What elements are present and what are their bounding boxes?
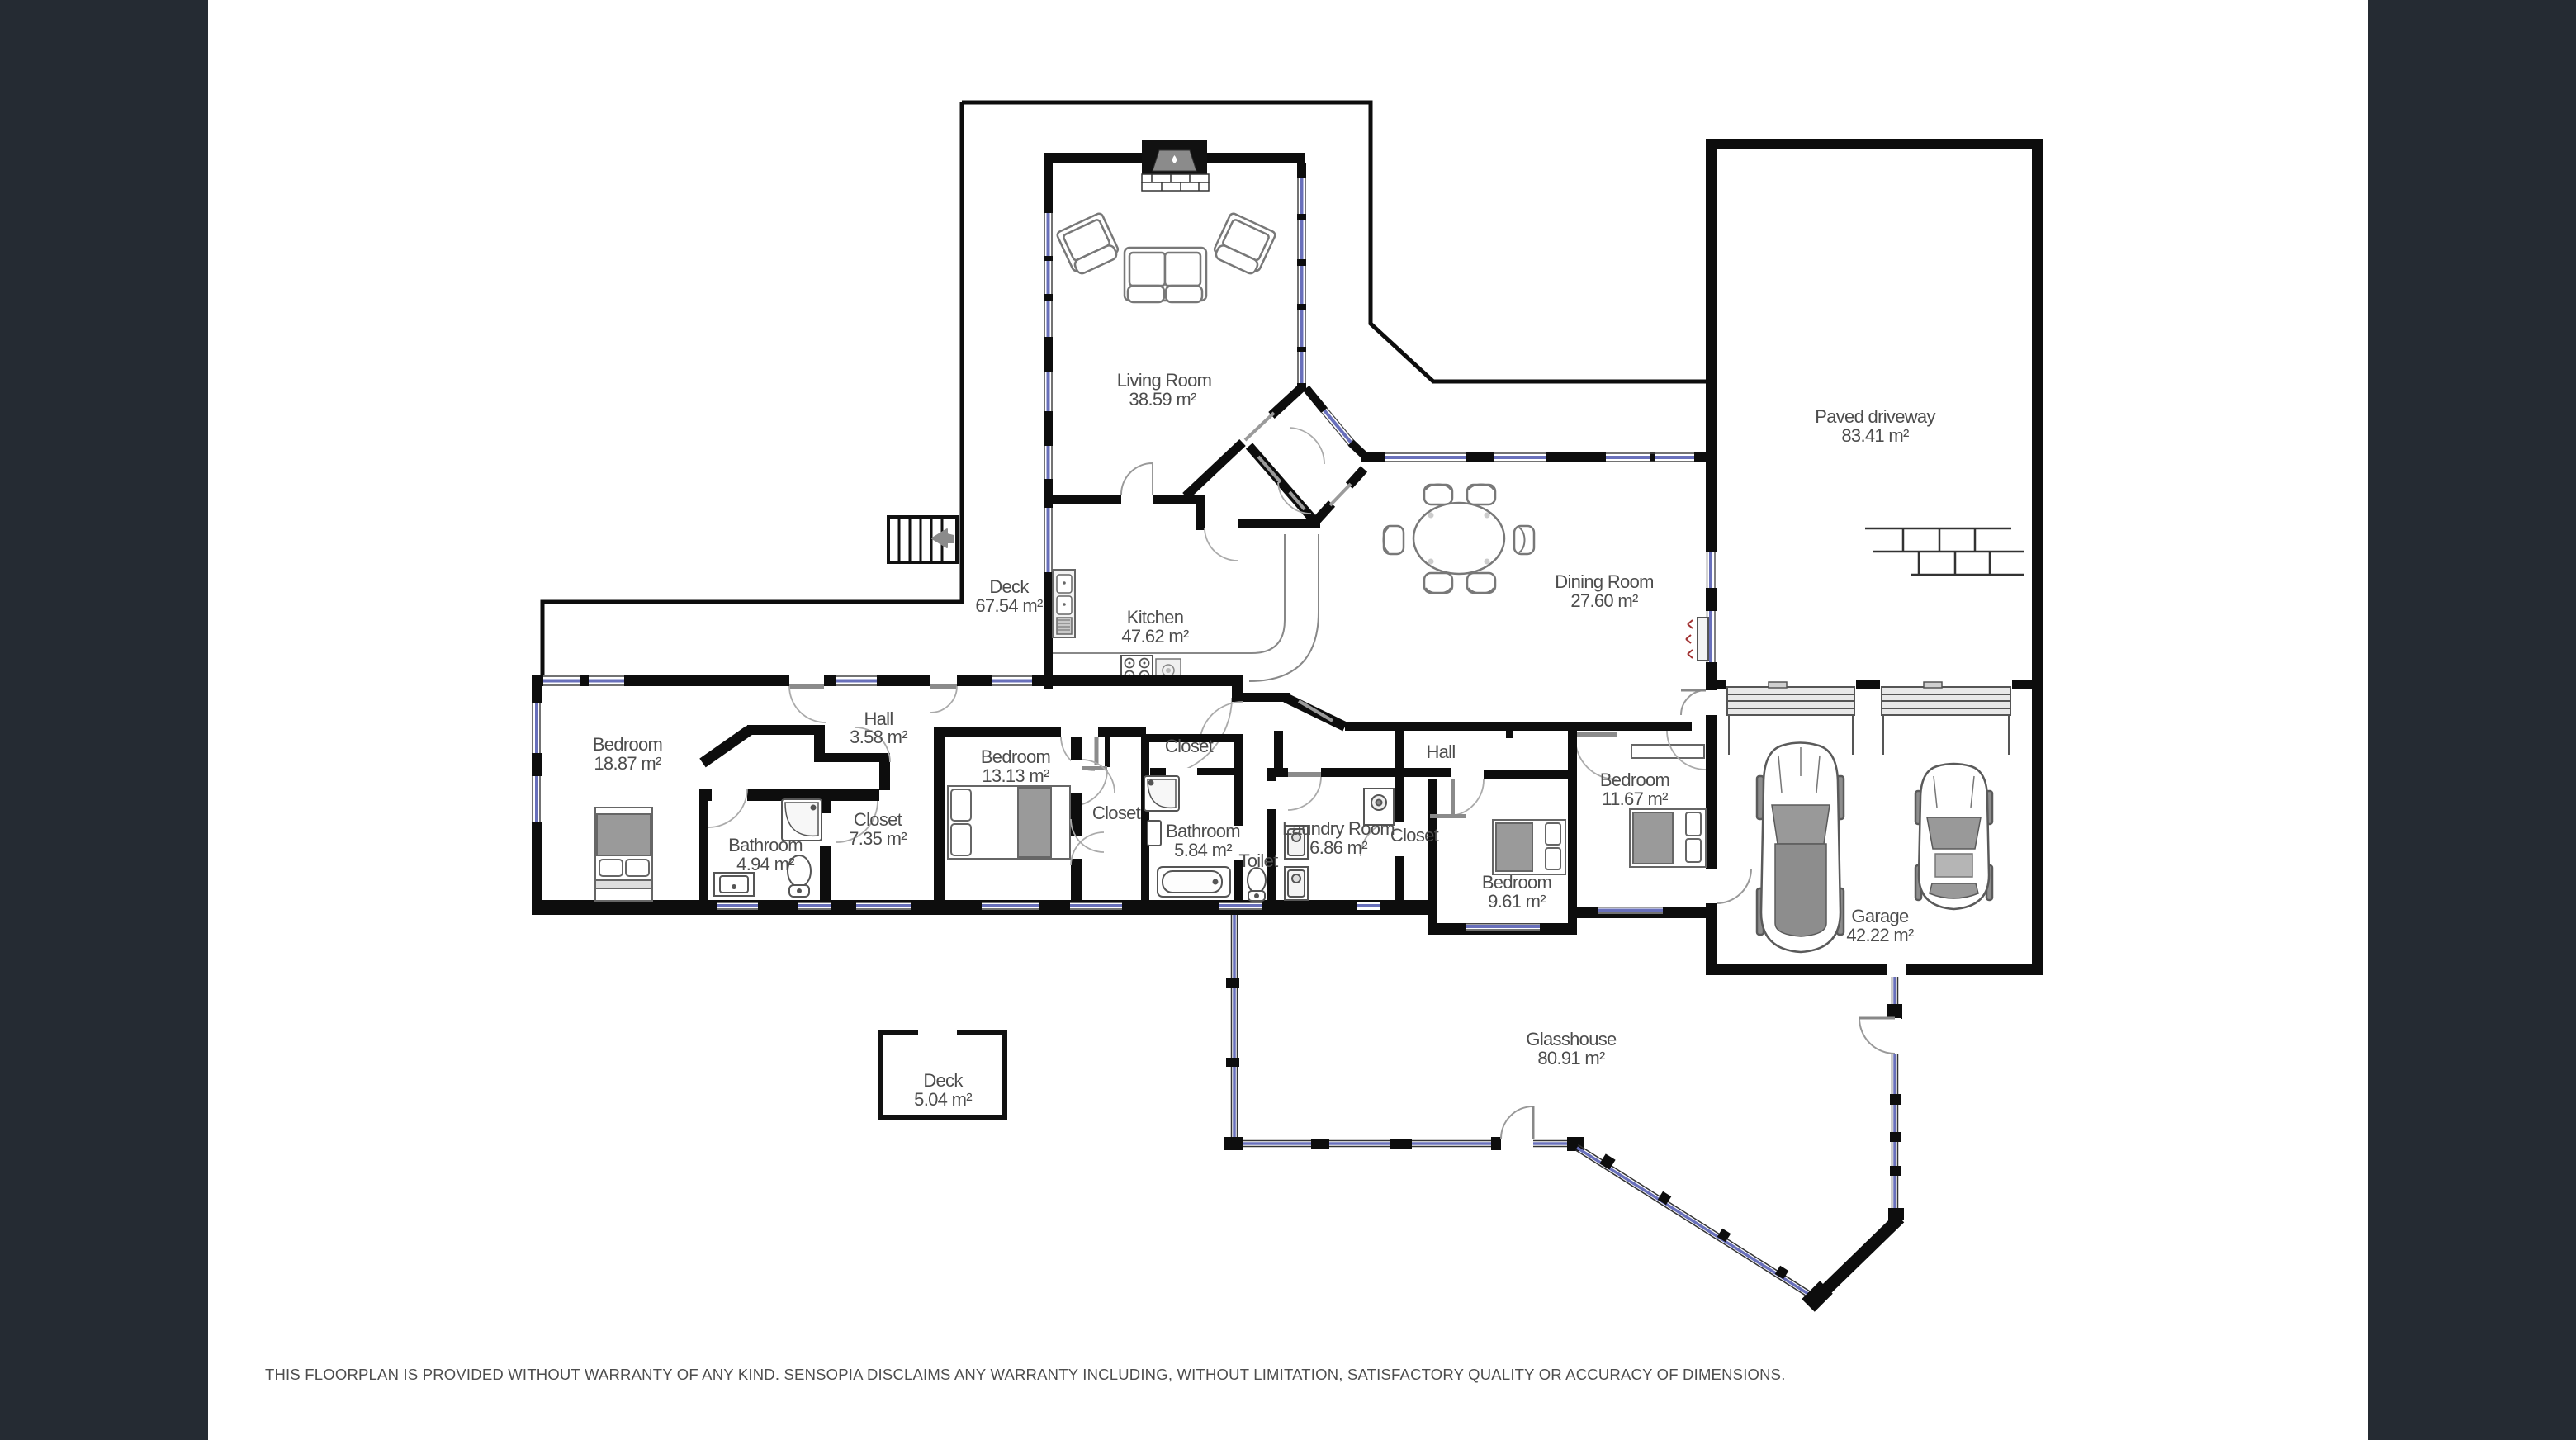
svg-text:47.62 m²: 47.62 m² (1121, 626, 1189, 647)
svg-text:Bedroom: Bedroom (1600, 770, 1669, 790)
svg-text:Dining Room: Dining Room (1555, 571, 1653, 592)
svg-text:4.94 m²: 4.94 m² (736, 854, 794, 874)
svg-text:9.61 m²: 9.61 m² (1488, 891, 1546, 912)
svg-text:5.84 m²: 5.84 m² (1174, 840, 1232, 860)
svg-text:42.22 m²: 42.22 m² (1846, 925, 1914, 945)
svg-text:Bathroom: Bathroom (728, 835, 803, 855)
svg-text:Bedroom: Bedroom (593, 734, 662, 755)
svg-text:27.60 m²: 27.60 m² (1570, 590, 1638, 611)
svg-text:Bedroom: Bedroom (1482, 872, 1551, 893)
svg-text:13.13 m²: 13.13 m² (982, 765, 1049, 786)
svg-text:THIS FLOORPLAN IS PROVIDED WIT: THIS FLOORPLAN IS PROVIDED WITHOUT WARRA… (265, 1366, 1786, 1383)
svg-text:Bedroom: Bedroom (981, 746, 1050, 767)
svg-text:7.35 m²: 7.35 m² (849, 828, 907, 849)
svg-text:6.86 m²: 6.86 m² (1309, 837, 1367, 858)
svg-text:67.54 m²: 67.54 m² (975, 595, 1043, 616)
svg-text:Closet: Closet (1390, 825, 1439, 846)
svg-text:Closet: Closet (1092, 803, 1141, 823)
svg-text:Toilet: Toilet (1238, 850, 1278, 871)
svg-text:Kitchen: Kitchen (1127, 607, 1183, 628)
svg-text:Hall: Hall (1426, 741, 1455, 762)
svg-text:Closet: Closet (854, 809, 902, 830)
svg-text:11.67 m²: 11.67 m² (1602, 789, 1668, 809)
svg-text:18.87 m²: 18.87 m² (594, 753, 661, 774)
svg-text:Living Room: Living Room (1117, 370, 1212, 391)
svg-text:38.59 m²: 38.59 m² (1129, 389, 1196, 410)
svg-text:83.41 m²: 83.41 m² (1841, 425, 1909, 446)
svg-text:5.04 m²: 5.04 m² (914, 1089, 972, 1110)
svg-text:Deck: Deck (923, 1070, 964, 1091)
svg-text:Paved driveway: Paved driveway (1815, 406, 1935, 427)
svg-text:80.91 m²: 80.91 m² (1537, 1048, 1605, 1068)
svg-text:Bathroom: Bathroom (1166, 821, 1240, 841)
svg-text:Closet: Closet (1165, 736, 1214, 756)
svg-text:Deck: Deck (989, 576, 1030, 597)
svg-text:3.58 m²: 3.58 m² (850, 727, 907, 747)
svg-text:Garage: Garage (1851, 906, 1909, 926)
svg-text:Laundry Room: Laundry Room (1282, 818, 1395, 839)
svg-text:Glasshouse: Glasshouse (1526, 1029, 1617, 1049)
